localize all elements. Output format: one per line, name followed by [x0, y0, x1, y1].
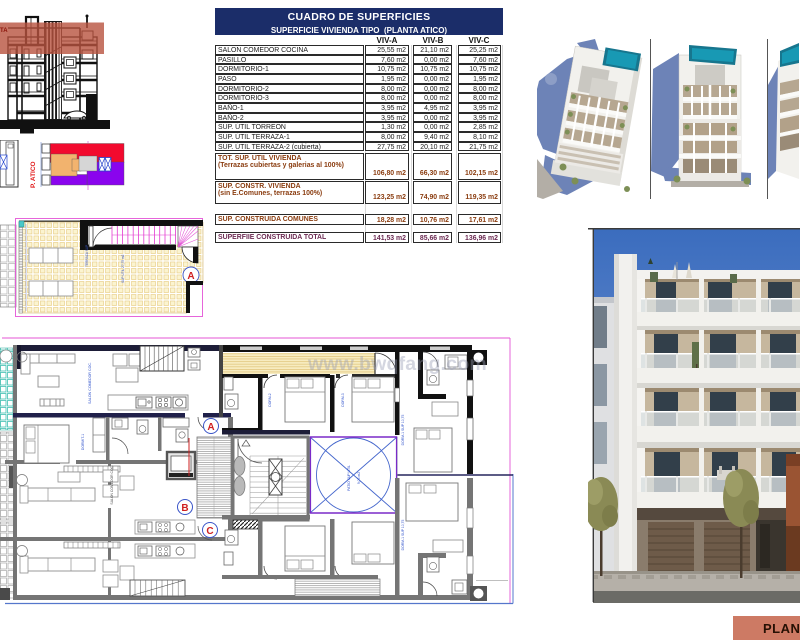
svg-text:A: A: [207, 422, 214, 433]
svg-text:9,05 m2: 9,05 m2: [357, 472, 361, 484]
svg-text:TA: TA: [0, 28, 8, 34]
svg-text:DORM-3: DORM-3: [341, 393, 345, 406]
svg-text:DORM-1 SUP 10,75: DORM-1 SUP 10,75: [401, 415, 405, 446]
svg-text:SUP UTIL 27,75 m2: SUP UTIL 27,75 m2: [121, 254, 125, 283]
svg-text:www.bwqfang.com: www.bwqfang.com: [307, 353, 487, 375]
svg-text:C: C: [206, 526, 213, 537]
svg-text:PATIO SUP UTIL: PATIO SUP UTIL: [347, 465, 351, 491]
svg-text:SALON COMEDOR COC.: SALON COMEDOR COC.: [88, 362, 92, 404]
svg-text:TERRAZA SUP: TERRAZA SUP: [85, 245, 89, 267]
svg-text:DORM-1 SUP 10,75: DORM-1 SUP 10,75: [401, 520, 405, 551]
svg-text:DORMIT-1: DORMIT-1: [81, 434, 85, 450]
svg-text:B: B: [181, 503, 188, 514]
svg-text:DORM-2: DORM-2: [268, 393, 272, 406]
svg-text:SALON COMEDOR COC.: SALON COMEDOR COC.: [110, 465, 114, 505]
svg-text:A: A: [187, 271, 194, 282]
